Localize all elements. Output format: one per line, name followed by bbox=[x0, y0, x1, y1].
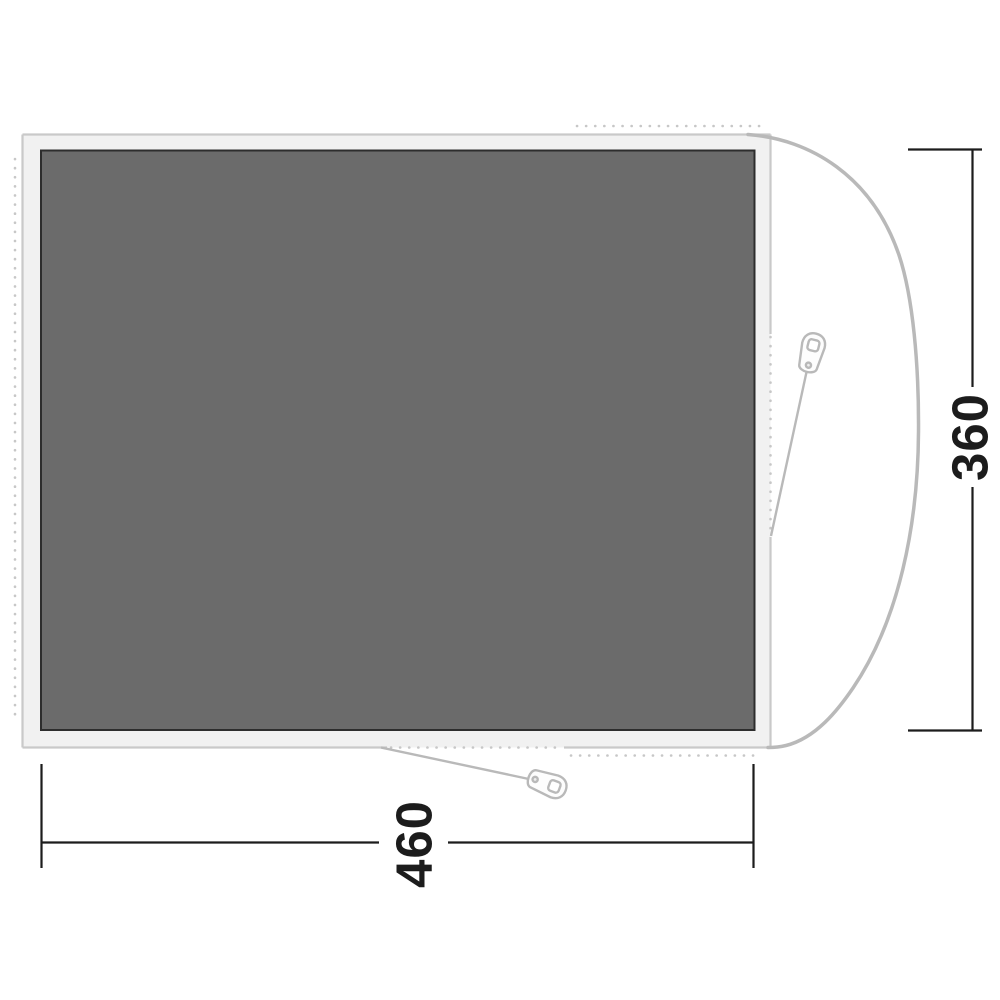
height-dimension-label: 360 bbox=[942, 393, 999, 481]
groundsheet bbox=[41, 151, 755, 731]
peg-hole bbox=[547, 779, 561, 793]
diagram-canvas: 460 360 bbox=[0, 0, 1000, 1000]
width-dimension-label: 460 bbox=[386, 800, 443, 888]
peg-pin-hole bbox=[532, 776, 539, 783]
peg-hole bbox=[807, 339, 820, 352]
tent-footprint-diagram: 460 360 bbox=[0, 0, 1000, 1000]
peg-pin-hole bbox=[805, 362, 811, 368]
